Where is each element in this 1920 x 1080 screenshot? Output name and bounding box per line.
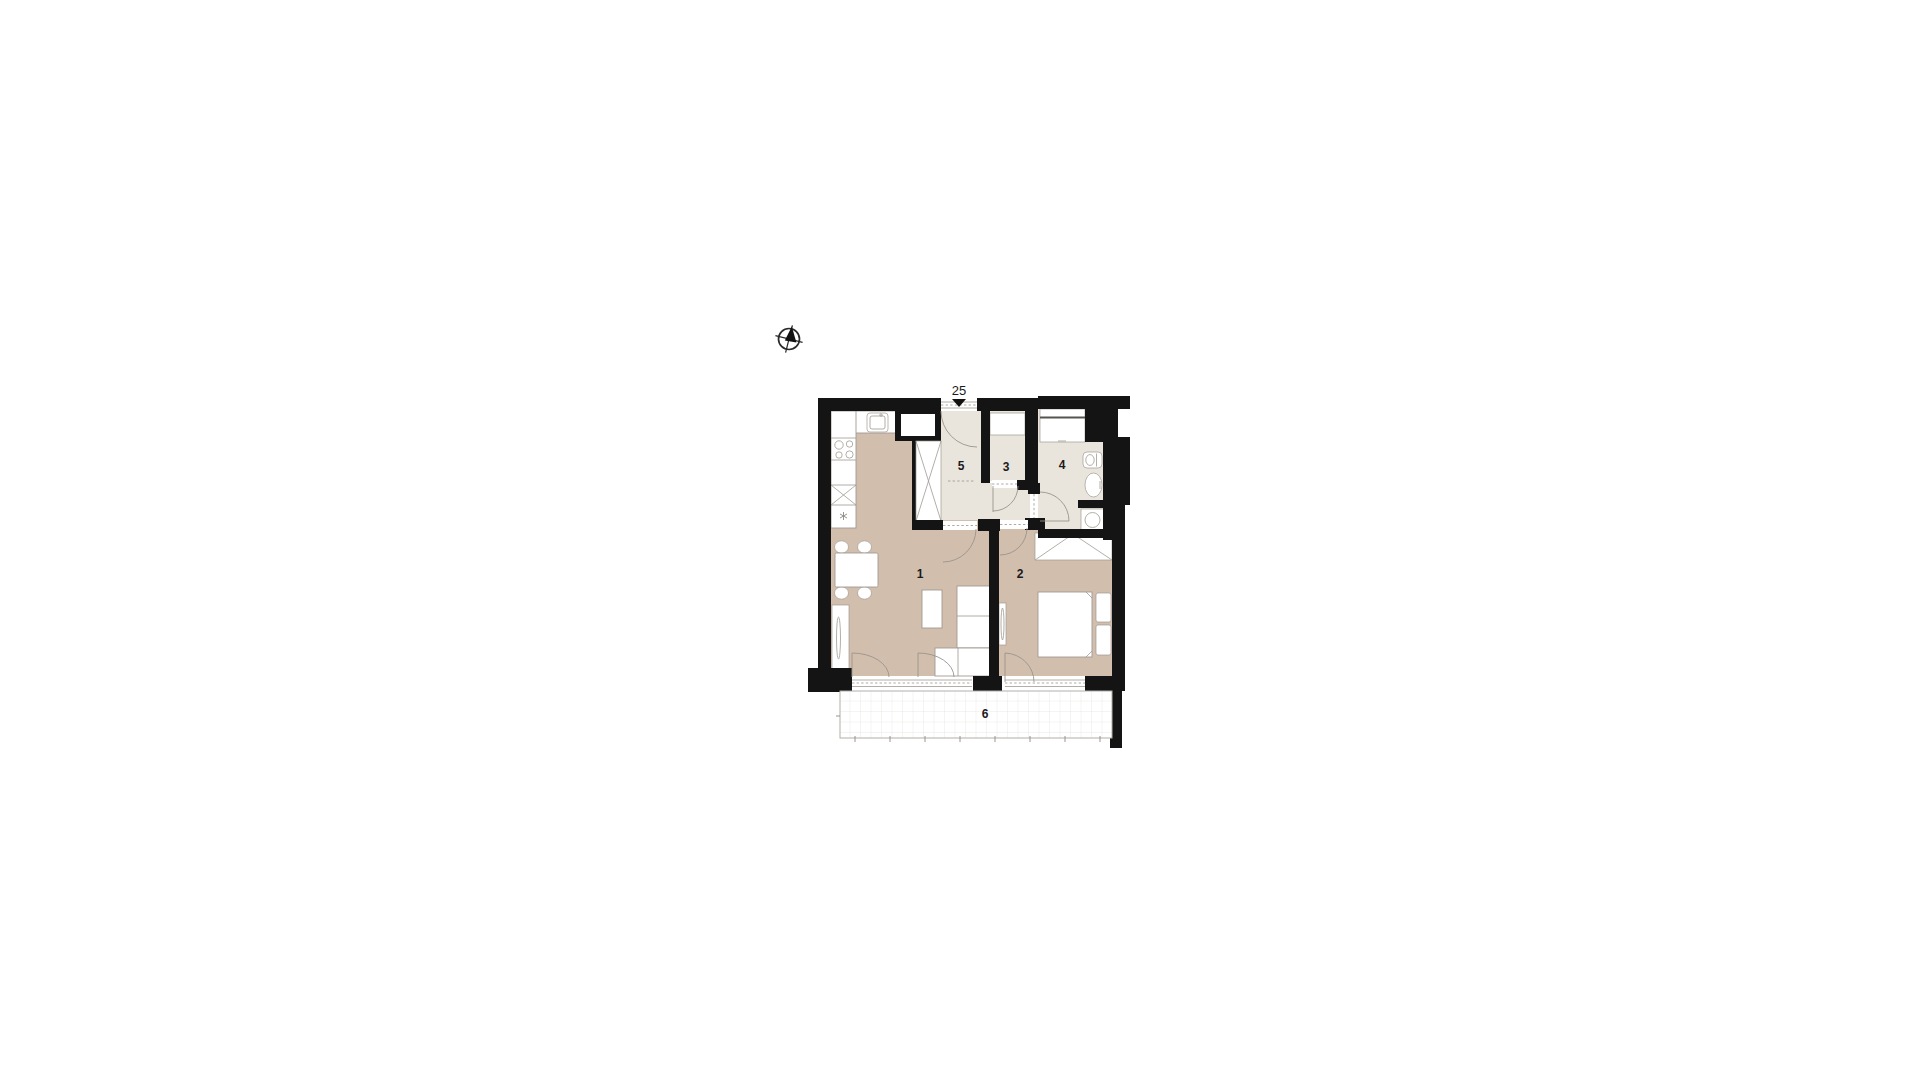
- dining-chair: [858, 587, 872, 599]
- door-threshold-room1: [943, 521, 977, 530]
- room-label-6: 6: [982, 707, 989, 721]
- wall-right-lower: [1112, 540, 1125, 691]
- room-label-1: 1: [917, 567, 924, 581]
- wall-right-pier: [1118, 437, 1130, 505]
- bathroom-sink: [1085, 473, 1102, 497]
- floor-plan-drawing: 25 1 2 3 4 5 6: [770, 315, 1140, 755]
- balcony-deck: [840, 691, 1112, 738]
- wall-pillar-bathroom: [1085, 408, 1103, 442]
- wall-room3-stub: [1017, 480, 1038, 490]
- dining-chair: [835, 587, 849, 599]
- balcony-sill-room1: [852, 677, 972, 690]
- installation-shaft: [901, 414, 935, 436]
- hall-closet: [916, 441, 941, 521]
- compass-icon: [775, 325, 802, 352]
- radiator-bedroom: [999, 603, 1006, 645]
- room-3-cabinet: [990, 413, 1025, 435]
- closet-partition-wall: [912, 441, 916, 521]
- wall-bottom-left-pier: [808, 668, 852, 692]
- kitchen-counter-left: [831, 411, 856, 528]
- wall-bottom-right: [1085, 676, 1112, 691]
- wall-washer-niche: [1078, 500, 1108, 508]
- floor-plan-page: 25 1 2 3 4 5 6: [0, 0, 1920, 1080]
- unit-number-label: 25: [952, 383, 966, 398]
- wall-divider-5-3: [981, 411, 990, 483]
- wall-1-2-foot: [973, 676, 1002, 691]
- window-left: [832, 605, 849, 672]
- wall-left: [818, 398, 831, 676]
- room-label-3: 3: [1003, 460, 1010, 474]
- bed-pillow: [1096, 593, 1111, 622]
- door-threshold-bathroom: [1030, 494, 1038, 518]
- wall-1-2: [989, 519, 999, 680]
- wall-hall-stub-left: [912, 520, 943, 530]
- door-threshold-room2: [1000, 520, 1028, 529]
- bed-mattress: [1038, 592, 1092, 657]
- dining-chair: [835, 541, 849, 553]
- door-threshold-room3: [992, 480, 1017, 488]
- room-label-2: 2: [1017, 567, 1024, 581]
- toilet: [1083, 452, 1102, 468]
- balcony: [836, 691, 1112, 742]
- wall-top-left: [818, 398, 941, 411]
- wall-3-4: [1025, 398, 1038, 483]
- dining-table: [835, 553, 878, 587]
- balcony-sill-room2: [1005, 677, 1085, 690]
- dining-chair: [858, 541, 872, 553]
- room-5-floor-lower: [941, 483, 1030, 520]
- room-label-4: 4: [1059, 458, 1066, 472]
- coffee-table: [922, 590, 942, 628]
- bathtub: [1040, 409, 1085, 442]
- room-label-5: 5: [958, 459, 965, 473]
- wall-bathroom-bottom: [1038, 529, 1113, 538]
- bed-pillow: [1096, 625, 1111, 655]
